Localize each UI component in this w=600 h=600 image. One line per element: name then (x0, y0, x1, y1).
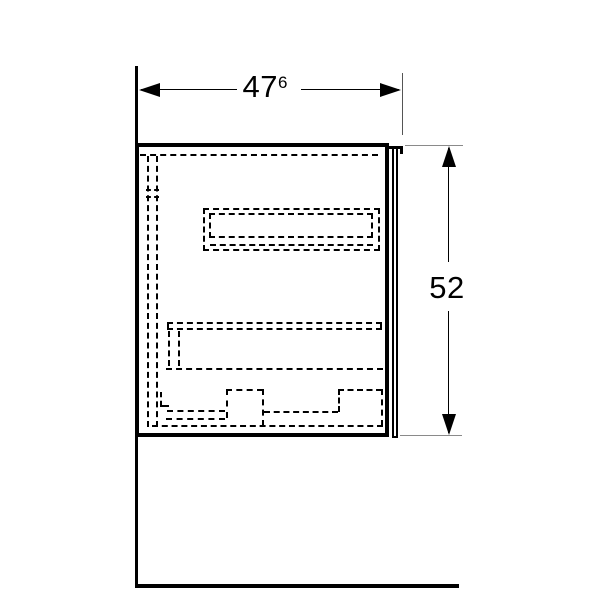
hidden-bump2-left (338, 389, 340, 412)
hidden-bump1-left (226, 389, 228, 418)
hidden-mid-shelf-line (264, 411, 338, 413)
hidden-drawer-rim-band (167, 322, 382, 330)
width-value: 47 (243, 69, 278, 104)
hidden-bump1-top (226, 389, 263, 391)
height-dim-tick-bottom (400, 435, 462, 436)
width-dim-extension-right (402, 73, 403, 135)
height-value: 52 (429, 270, 464, 305)
hidden-bump2-right (381, 389, 383, 426)
hidden-step-left-vertical (160, 392, 162, 406)
hidden-top-panel-line (140, 154, 378, 156)
hidden-base-line (152, 425, 383, 427)
hidden-drawer-rim-left-2 (178, 331, 180, 366)
hidden-grip-recess-inner (209, 213, 373, 238)
height-dim-arrow-up-icon (442, 146, 456, 167)
width-dim-label: 476 (233, 71, 297, 102)
width-dim-arrow-right-icon (380, 83, 401, 97)
hidden-drawer-bottom-line (166, 368, 383, 370)
technical-drawing-canvas: 476 52 (0, 0, 600, 600)
width-superscript: 6 (278, 73, 287, 92)
front-panel-top-lip-end (400, 146, 403, 154)
height-dim-arrow-down-icon (442, 414, 456, 435)
hidden-bracket-mark-2 (146, 196, 159, 198)
hidden-step-left-horizontal (160, 405, 169, 407)
hidden-shelf-line-1 (167, 410, 225, 412)
hidden-shelf-line-2 (166, 418, 225, 420)
height-dim-label: 52 (421, 272, 473, 303)
floor-line (135, 584, 459, 588)
front-panel-outline (392, 146, 398, 438)
hidden-drawer-rim-left-1 (168, 331, 170, 366)
hidden-grip-recess-groove (210, 244, 373, 246)
hidden-bump1-right (262, 389, 264, 426)
hidden-bracket-mark-1 (146, 189, 159, 191)
width-dim-arrow-left-icon (139, 83, 160, 97)
hidden-bump2-top (338, 389, 382, 391)
